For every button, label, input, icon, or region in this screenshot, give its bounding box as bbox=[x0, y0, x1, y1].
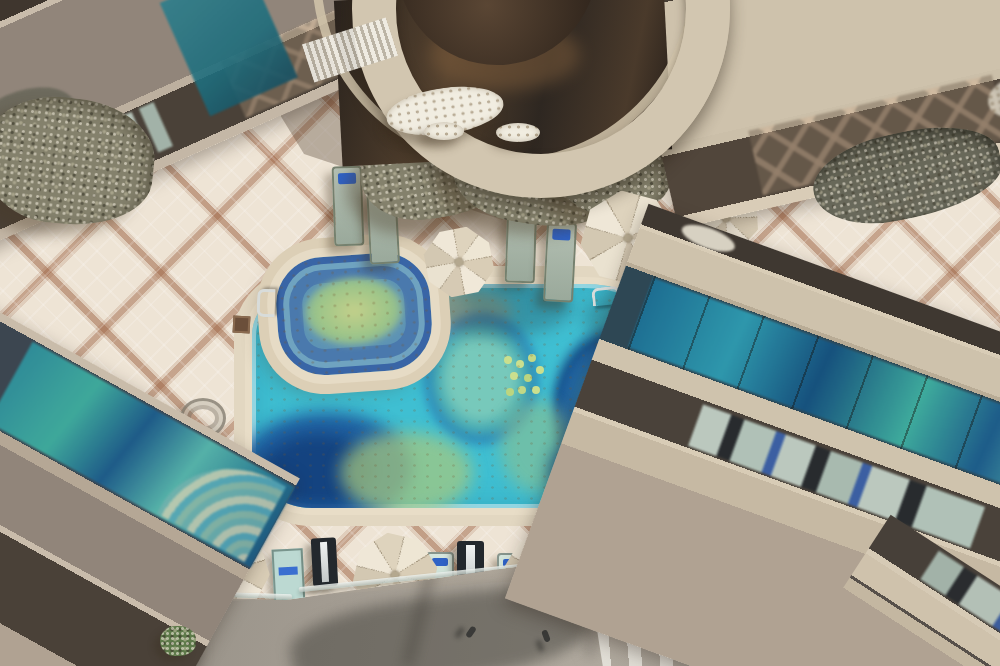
aerial-photo-stage bbox=[0, 0, 1000, 666]
jacuzzi-speckle bbox=[273, 250, 435, 378]
pool-ladder bbox=[257, 289, 276, 318]
mat-deck-item bbox=[311, 537, 338, 586]
tree-canopy bbox=[160, 626, 196, 656]
sun-lounger bbox=[543, 221, 577, 302]
jacuzzi bbox=[263, 240, 444, 388]
perforated-canopy-small-2 bbox=[496, 123, 540, 142]
perforated-canopy-small-1 bbox=[424, 122, 464, 140]
deck-drain-grate bbox=[233, 316, 251, 334]
